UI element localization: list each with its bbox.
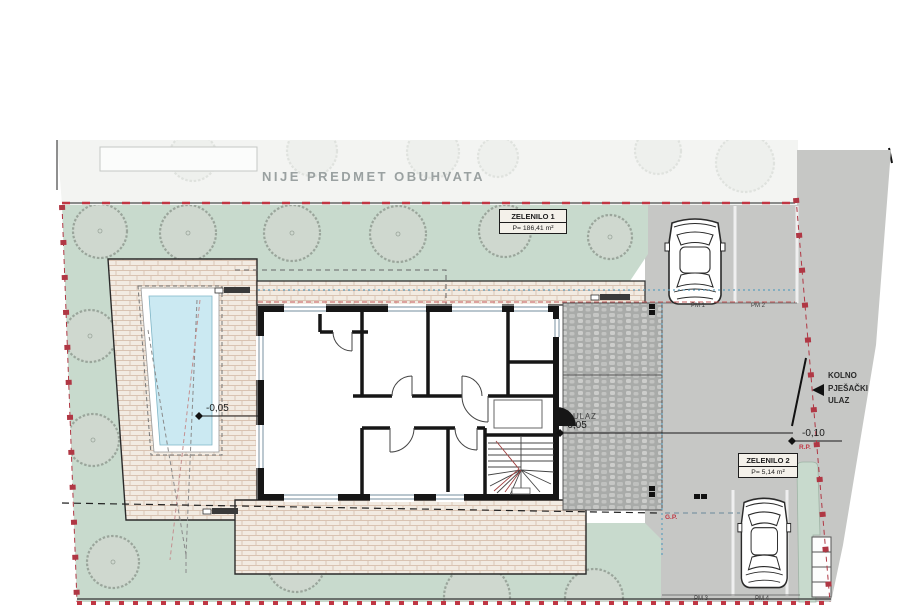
level-terrace: -0,05 xyxy=(206,403,229,414)
existing-building-outline xyxy=(100,147,257,171)
zelenilo2-area: P= 5,14 m² xyxy=(739,467,797,477)
parking-spot-label-2: PM 2 xyxy=(751,303,765,309)
parking-spot-label-4: PM 4 xyxy=(755,596,769,602)
building-floorplan xyxy=(256,304,576,502)
rp-marker: R.P. xyxy=(799,444,811,451)
zelenilo2-sign: ZELENILO 2 P= 5,14 m² xyxy=(738,453,798,478)
street-steps xyxy=(812,537,831,597)
pool xyxy=(141,288,219,452)
out-of-scope-note: NIJE PREDMET OBUHVATA xyxy=(262,169,482,184)
level-entrance: -0,05 xyxy=(564,420,587,431)
street-entry-line3: ULAZ xyxy=(828,395,868,408)
car-bottom-parking xyxy=(738,498,791,587)
gp-marker: G.P. xyxy=(665,514,677,521)
zelenilo1-area: P= 186,41 m² xyxy=(500,223,566,233)
zelenilo2-title: ZELENILO 2 xyxy=(739,454,797,467)
parking-spot-label-1: PM 1 xyxy=(691,303,705,309)
zelenilo1-title: ZELENILO 1 xyxy=(500,210,566,223)
level-street: -0,10 xyxy=(802,428,825,439)
zelenilo1-sign: ZELENILO 1 P= 186,41 m² xyxy=(499,209,567,234)
car-top-parking xyxy=(665,219,725,304)
closet xyxy=(494,400,542,428)
parking-spot-label-3: PM 3 xyxy=(694,596,708,602)
street-entry-line2: PJEŠAČKI xyxy=(828,383,868,396)
site-plan-drawing xyxy=(0,0,920,609)
cobble-court xyxy=(563,303,662,510)
site-plan-page: NIJE PREDMET OBUHVATA ZELENILO 1 P= 186,… xyxy=(0,0,920,609)
street-entry-line1: KOLNO xyxy=(828,370,868,383)
street-entry-label: KOLNO PJEŠAČKI ULAZ xyxy=(828,370,868,408)
